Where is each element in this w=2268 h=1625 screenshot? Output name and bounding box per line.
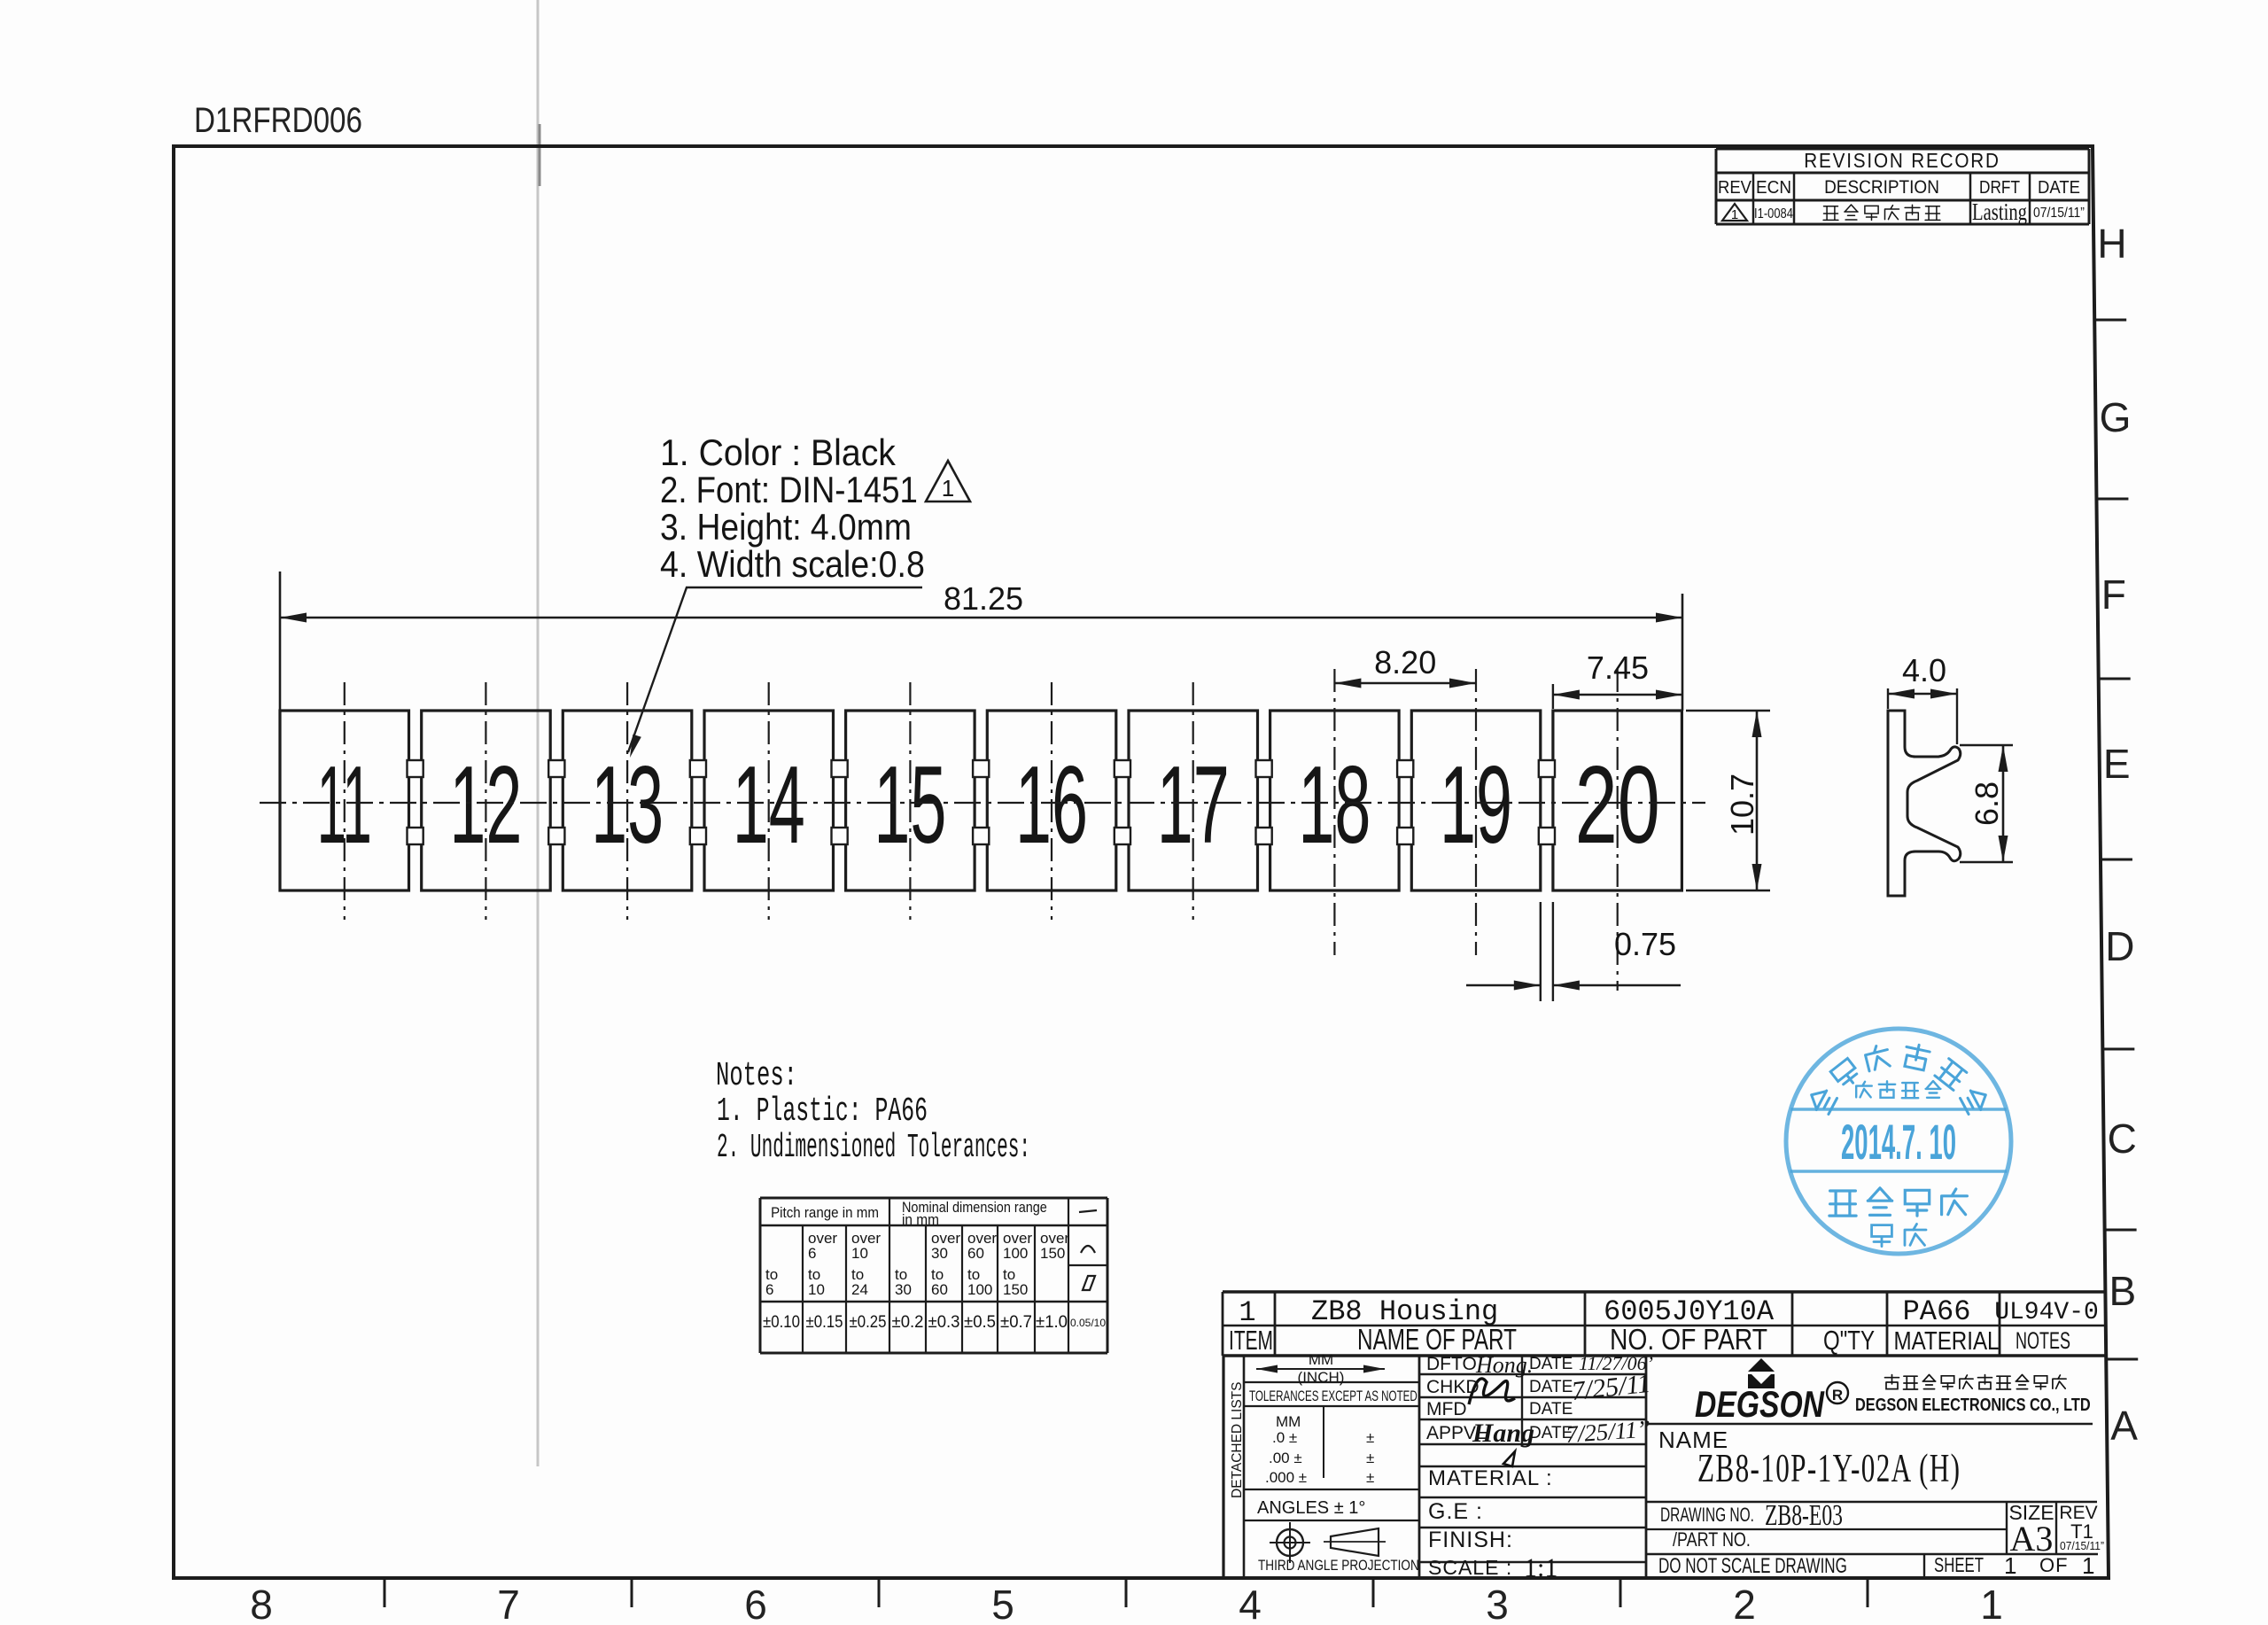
svg-text:DETACHED LISTS: DETACHED LISTS (1230, 1382, 1245, 1499)
svg-text:0.75: 0.75 (1614, 926, 1676, 962)
svg-text:±1.0: ±1.0 (1036, 1312, 1068, 1331)
svg-text:Q"TY: Q"TY (1823, 1325, 1875, 1356)
svg-text:REV: REV (1718, 178, 1751, 198)
svg-text:8.20: 8.20 (1374, 644, 1436, 680)
svg-text:1: 1 (1731, 207, 1738, 222)
svg-text:±0.10: ±0.10 (763, 1312, 800, 1331)
svg-text:7/25/11’’: 7/25/11’’ (1565, 1415, 1651, 1448)
svg-text:DRAWING NO.: DRAWING NO. (1660, 1504, 1754, 1526)
svg-text:100: 100 (1003, 1245, 1028, 1262)
svg-text:DRFT: DRFT (1979, 177, 2020, 197)
svg-text:DATE: DATE (2038, 178, 2080, 198)
svg-text:.000 ±: .000 ± (1265, 1469, 1307, 1486)
svg-text:ITEM: ITEM (1229, 1325, 1273, 1356)
svg-text:SHEET: SHEET (1934, 1555, 1984, 1577)
svg-text:MATERIAL :: MATERIAL : (1428, 1466, 1553, 1490)
svg-text:DATE: DATE (1529, 1378, 1573, 1396)
svg-text:1. Plastic: PA66: 1. Plastic: PA66 (717, 1092, 928, 1131)
svg-text:±0.5: ±0.5 (964, 1312, 996, 1331)
svg-text:1:1: 1:1 (1524, 1553, 1557, 1582)
svg-text:G.E :: G.E : (1428, 1499, 1483, 1524)
svg-text:2. Undimensioned Tolerances:: 2. Undimensioned Tolerances: (717, 1129, 1030, 1167)
svg-text:6: 6 (744, 1582, 767, 1625)
svg-text:DATE: DATE (1529, 1355, 1573, 1373)
svg-text:.0 ±: .0 ± (1272, 1429, 1297, 1446)
svg-text:4.0: 4.0 (1902, 652, 1946, 688)
svg-text:OF: OF (2039, 1554, 2069, 1576)
svg-text:F: F (2101, 571, 2126, 618)
svg-text:C: C (2108, 1116, 2137, 1162)
svg-text:100: 100 (967, 1281, 992, 1298)
svg-text:Pitch range in mm: Pitch range in mm (771, 1204, 879, 1221)
svg-text:1. Color : Black: 1. Color : Black (660, 432, 897, 474)
svg-text:07/15/11”: 07/15/11” (2033, 205, 2085, 221)
svg-text:DO NOT SCALE DRAWING: DO NOT SCALE DRAWING (1658, 1554, 1847, 1578)
svg-text:TOLERANCES EXCEPT AS NOTED: TOLERANCES EXCEPT AS NOTED (1249, 1388, 1417, 1405)
svg-text:Hang: Hang (1472, 1419, 1534, 1448)
svg-text:±0.15: ±0.15 (806, 1312, 843, 1331)
svg-text:DESCRIPTION: DESCRIPTION (1824, 177, 1939, 198)
svg-text:SCALE :: SCALE : (1428, 1556, 1512, 1579)
svg-text:R: R (1832, 1387, 1843, 1403)
svg-text:60: 60 (967, 1245, 984, 1262)
svg-text:NO. OF PART: NO. OF PART (1610, 1323, 1767, 1357)
svg-text:D: D (2105, 923, 2134, 969)
svg-text:6: 6 (808, 1245, 816, 1262)
svg-text:Hong.: Hong. (1475, 1352, 1533, 1378)
svg-text:07/15/11”: 07/15/11” (2060, 1540, 2104, 1553)
svg-text:2: 2 (1733, 1582, 1756, 1625)
svg-text:3. Height: 4.0mm: 3. Height: 4.0mm (660, 507, 912, 548)
svg-text:1: 1 (1980, 1582, 2003, 1625)
svg-text:ECN: ECN (1756, 178, 1791, 198)
svg-text:A: A (2110, 1403, 2138, 1449)
svg-text:REVISION RECORD: REVISION RECORD (1804, 149, 2000, 172)
svg-text:7.45: 7.45 (1587, 649, 1649, 686)
svg-text:DFTO: DFTO (1426, 1354, 1477, 1374)
svg-text:I1-0084: I1-0084 (1754, 206, 1793, 222)
svg-text:150: 150 (1003, 1281, 1028, 1298)
svg-text:10: 10 (808, 1281, 825, 1298)
svg-text:±: ± (1366, 1469, 1374, 1486)
svg-text:150: 150 (1040, 1245, 1065, 1262)
svg-text:UL94V-0: UL94V-0 (1994, 1299, 2099, 1326)
svg-text:±0.3: ±0.3 (928, 1312, 960, 1331)
svg-text:H: H (2097, 221, 2126, 267)
svg-text:/PART NO.: /PART NO. (1673, 1529, 1751, 1551)
svg-text:4: 4 (1239, 1582, 1262, 1625)
svg-text:G: G (2100, 394, 2132, 440)
svg-text:±: ± (1366, 1450, 1374, 1466)
svg-text:7: 7 (497, 1582, 520, 1625)
svg-text:±0.7: ±0.7 (1000, 1312, 1032, 1331)
svg-text:24: 24 (851, 1281, 868, 1298)
svg-text:ZB8 Housing: ZB8 Housing (1311, 1295, 1498, 1328)
svg-text:ZB8-E03: ZB8-E03 (1765, 1499, 1843, 1532)
svg-text:2. Font: DIN-1451: 2. Font: DIN-1451 (660, 470, 918, 511)
svg-text:1: 1 (2082, 1552, 2094, 1579)
svg-text:E: E (2103, 741, 2131, 787)
svg-text:MM: MM (1276, 1413, 1301, 1430)
svg-text:DATE: DATE (1529, 1400, 1573, 1419)
svg-text:B: B (2109, 1268, 2137, 1314)
svg-text:±0.2: ±0.2 (892, 1312, 924, 1331)
svg-text:THIRD ANGLE PROJECTION: THIRD ANGLE PROJECTION (1258, 1558, 1419, 1574)
svg-text:0.05/10: 0.05/10 (1070, 1317, 1106, 1329)
svg-text:2014.7. 10: 2014.7. 10 (1841, 1115, 1956, 1170)
svg-text:5: 5 (991, 1582, 1014, 1625)
svg-text:30: 30 (931, 1245, 948, 1262)
svg-text:DEGSON: DEGSON (1695, 1385, 1825, 1426)
svg-text:1: 1 (942, 475, 954, 501)
svg-text:MATERIAL: MATERIAL (1894, 1326, 2000, 1356)
svg-text:3: 3 (1486, 1582, 1509, 1625)
svg-text:8: 8 (250, 1582, 273, 1625)
svg-text:30: 30 (895, 1281, 912, 1298)
svg-text:ANGLES ± 1°: ANGLES ± 1° (1257, 1498, 1365, 1518)
svg-text:PA66: PA66 (1903, 1295, 1971, 1328)
svg-text:.00 ±: .00 ± (1269, 1450, 1302, 1466)
svg-text:6.8: 6.8 (1969, 781, 2005, 826)
svg-text:±0.25: ±0.25 (850, 1312, 887, 1331)
svg-text:Notes:: Notes: (716, 1056, 797, 1094)
svg-text:81.25: 81.25 (944, 580, 1023, 617)
svg-text:MM: MM (1309, 1351, 1333, 1368)
svg-text:ZB8-10P-1Y-02A (H): ZB8-10P-1Y-02A (H) (1697, 1445, 1961, 1490)
svg-text:1: 1 (2004, 1552, 2016, 1579)
svg-text:60: 60 (931, 1281, 948, 1298)
svg-text:DEGSON ELECTRONICS CO., LTD: DEGSON ELECTRONICS CO., LTD (1855, 1394, 2091, 1414)
svg-text:MFD: MFD (1426, 1399, 1467, 1419)
svg-text:FINISH:: FINISH: (1428, 1528, 1513, 1552)
svg-text:D1RFRD006: D1RFRD006 (194, 100, 362, 140)
svg-text:(INCH): (INCH) (1298, 1369, 1345, 1386)
svg-text:in mm: in mm (902, 1211, 939, 1228)
svg-text:±: ± (1366, 1429, 1374, 1446)
svg-text:10.7: 10.7 (1724, 774, 1760, 836)
svg-text:NOTES: NOTES (2016, 1326, 2070, 1354)
svg-text:10: 10 (851, 1245, 868, 1262)
svg-text:Lasting: Lasting (1972, 200, 2027, 226)
svg-text:6: 6 (765, 1281, 773, 1298)
svg-text:4. Width scale:0.8: 4. Width scale:0.8 (660, 544, 925, 585)
